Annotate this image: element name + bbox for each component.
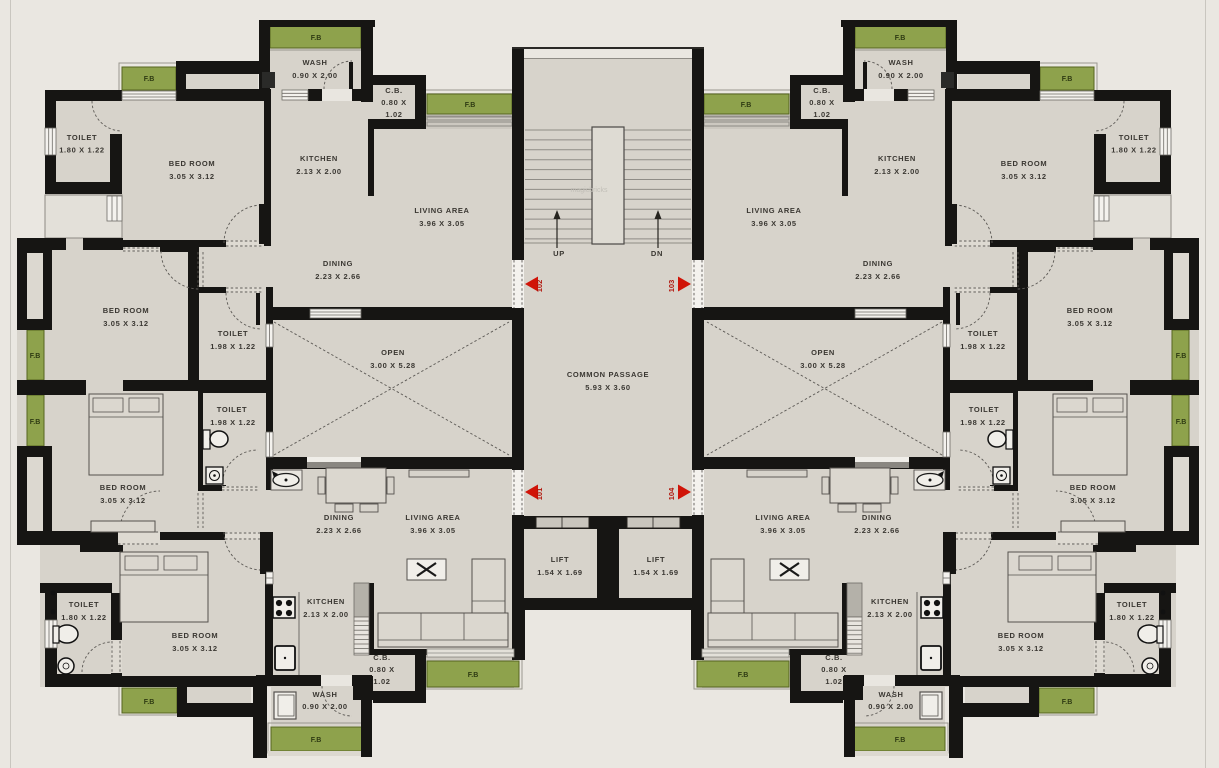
svg-text:F.B: F.B — [1176, 353, 1187, 360]
svg-text:3.05 X 3.12: 3.05 X 3.12 — [103, 319, 149, 328]
svg-text:103: 103 — [667, 280, 676, 293]
svg-text:5.93 X 3.60: 5.93 X 3.60 — [585, 383, 631, 392]
svg-text:F.B: F.B — [144, 699, 155, 706]
svg-text:F.B: F.B — [741, 102, 752, 109]
svg-text:3.05 X 3.12: 3.05 X 3.12 — [1001, 172, 1047, 181]
svg-text:F.B: F.B — [738, 672, 749, 679]
svg-text:DINING: DINING — [863, 259, 893, 268]
svg-text:1.54 X 1.69: 1.54 X 1.69 — [537, 568, 583, 577]
svg-text:F.B: F.B — [30, 353, 41, 360]
svg-text:1.80 X 1.22: 1.80 X 1.22 — [59, 146, 105, 155]
svg-text:1.98 X 1.22: 1.98 X 1.22 — [960, 418, 1006, 427]
svg-text:3.05 X 3.12: 3.05 X 3.12 — [172, 644, 218, 653]
svg-text:2.23 X 2.66: 2.23 X 2.66 — [855, 272, 901, 281]
svg-text:OPEN: OPEN — [381, 348, 405, 357]
svg-text:WASH: WASH — [312, 690, 337, 699]
svg-text:TOILET: TOILET — [968, 329, 998, 338]
svg-text:TOILET: TOILET — [969, 405, 999, 414]
svg-text:magicbricks: magicbricks — [571, 187, 608, 194]
svg-text:C.B.: C.B. — [385, 86, 403, 95]
svg-text:BED ROOM: BED ROOM — [1067, 306, 1113, 315]
svg-text:2.23 X 2.66: 2.23 X 2.66 — [315, 272, 361, 281]
svg-text:C.B.: C.B. — [825, 653, 843, 662]
svg-text:UP: UP — [553, 249, 565, 258]
svg-text:LIVING AREA: LIVING AREA — [414, 206, 469, 215]
svg-text:C.B.: C.B. — [813, 86, 831, 95]
svg-text:DINING: DINING — [324, 513, 354, 522]
svg-text:1.98 X 1.22: 1.98 X 1.22 — [960, 342, 1006, 351]
svg-text:DINING: DINING — [862, 513, 892, 522]
svg-text:2.13 X 2.00: 2.13 X 2.00 — [874, 167, 920, 176]
svg-text:0.80 X: 0.80 X — [809, 98, 835, 107]
svg-text:101: 101 — [535, 488, 544, 501]
svg-text:C.B.: C.B. — [373, 653, 391, 662]
svg-text:LIVING AREA: LIVING AREA — [405, 513, 460, 522]
svg-text:2.23 X 2.66: 2.23 X 2.66 — [316, 526, 362, 535]
svg-text:F.B: F.B — [465, 102, 476, 109]
svg-text:1.98 X 1.22: 1.98 X 1.22 — [210, 342, 256, 351]
svg-text:3.00 X 5.28: 3.00 X 5.28 — [800, 361, 846, 370]
svg-text:F.B: F.B — [311, 35, 322, 42]
svg-text:LIVING AREA: LIVING AREA — [755, 513, 810, 522]
svg-text:TOILET: TOILET — [218, 329, 248, 338]
svg-text:OPEN: OPEN — [811, 348, 835, 357]
svg-text:WASH: WASH — [888, 58, 913, 67]
svg-text:1.80 X 1.22: 1.80 X 1.22 — [1111, 146, 1157, 155]
svg-text:0.80 X: 0.80 X — [821, 665, 847, 674]
svg-text:LIFT: LIFT — [551, 555, 569, 564]
svg-text:TOILET: TOILET — [1119, 133, 1149, 142]
svg-text:BED ROOM: BED ROOM — [100, 483, 146, 492]
svg-text:0.80 X: 0.80 X — [381, 98, 407, 107]
svg-text:WASH: WASH — [302, 58, 327, 67]
svg-text:LIVING AREA: LIVING AREA — [746, 206, 801, 215]
svg-text:LIFT: LIFT — [647, 555, 665, 564]
svg-text:BED ROOM: BED ROOM — [172, 631, 218, 640]
svg-text:BED ROOM: BED ROOM — [169, 159, 215, 168]
svg-text:BED ROOM: BED ROOM — [1001, 159, 1047, 168]
svg-text:F.B: F.B — [30, 419, 41, 426]
svg-text:BED ROOM: BED ROOM — [998, 631, 1044, 640]
svg-text:2.23 X 2.66: 2.23 X 2.66 — [854, 526, 900, 535]
svg-text:0.90 X 2.00: 0.90 X 2.00 — [292, 71, 338, 80]
svg-text:3.96 X 3.05: 3.96 X 3.05 — [751, 219, 797, 228]
svg-text:1.02: 1.02 — [385, 110, 402, 119]
svg-text:0.90 X 2.00: 0.90 X 2.00 — [878, 71, 924, 80]
svg-text:3.05 X 3.12: 3.05 X 3.12 — [1067, 319, 1113, 328]
svg-text:1.02: 1.02 — [373, 677, 390, 686]
svg-text:KITCHEN: KITCHEN — [871, 597, 909, 606]
svg-text:1.80 X 1.22: 1.80 X 1.22 — [1109, 613, 1155, 622]
svg-text:3.96 X 3.05: 3.96 X 3.05 — [410, 526, 456, 535]
svg-text:1.02: 1.02 — [825, 677, 842, 686]
svg-text:0.90 X 2.00: 0.90 X 2.00 — [868, 702, 914, 711]
svg-text:COMMON PASSAGE: COMMON PASSAGE — [567, 370, 649, 379]
svg-text:BED ROOM: BED ROOM — [103, 306, 149, 315]
svg-text:104: 104 — [667, 487, 676, 500]
svg-text:F.B: F.B — [468, 672, 479, 679]
svg-text:F.B: F.B — [1062, 699, 1073, 706]
svg-text:KITCHEN: KITCHEN — [300, 154, 338, 163]
svg-text:F.B: F.B — [311, 737, 322, 744]
svg-text:F.B: F.B — [1062, 76, 1073, 83]
svg-text:F.B: F.B — [144, 76, 155, 83]
svg-text:F.B: F.B — [895, 35, 906, 42]
svg-text:2.13 X 2.00: 2.13 X 2.00 — [303, 610, 349, 619]
svg-text:KITCHEN: KITCHEN — [878, 154, 916, 163]
svg-text:TOILET: TOILET — [69, 600, 99, 609]
svg-text:3.05 X 3.12: 3.05 X 3.12 — [998, 644, 1044, 653]
svg-text:2.13 X 2.00: 2.13 X 2.00 — [296, 167, 342, 176]
svg-text:TOILET: TOILET — [67, 133, 97, 142]
svg-text:KITCHEN: KITCHEN — [307, 597, 345, 606]
svg-text:TOILET: TOILET — [1117, 600, 1147, 609]
svg-text:3.05 X 3.12: 3.05 X 3.12 — [1070, 496, 1116, 505]
svg-text:F.B: F.B — [1176, 419, 1187, 426]
svg-text:0.90 X 2.00: 0.90 X 2.00 — [302, 702, 348, 711]
svg-text:1.98 X 1.22: 1.98 X 1.22 — [210, 418, 256, 427]
svg-text:102: 102 — [535, 280, 544, 293]
svg-text:BED ROOM: BED ROOM — [1070, 483, 1116, 492]
svg-text:3.96 X 3.05: 3.96 X 3.05 — [760, 526, 806, 535]
svg-text:TOILET: TOILET — [217, 405, 247, 414]
svg-text:3.05 X 3.12: 3.05 X 3.12 — [169, 172, 215, 181]
svg-text:3.96 X 3.05: 3.96 X 3.05 — [419, 219, 465, 228]
svg-text:DINING: DINING — [323, 259, 353, 268]
svg-text:DN: DN — [651, 249, 663, 258]
svg-text:1.02: 1.02 — [813, 110, 830, 119]
svg-text:0.80 X: 0.80 X — [369, 665, 395, 674]
svg-text:3.00 X 5.28: 3.00 X 5.28 — [370, 361, 416, 370]
svg-text:2.13 X 2.00: 2.13 X 2.00 — [867, 610, 913, 619]
svg-text:1.54 X 1.69: 1.54 X 1.69 — [633, 568, 679, 577]
svg-text:F.B: F.B — [895, 737, 906, 744]
svg-text:1.80 X 1.22: 1.80 X 1.22 — [61, 613, 107, 622]
svg-text:WASH: WASH — [878, 690, 903, 699]
svg-text:3.05 X 3.12: 3.05 X 3.12 — [100, 496, 146, 505]
